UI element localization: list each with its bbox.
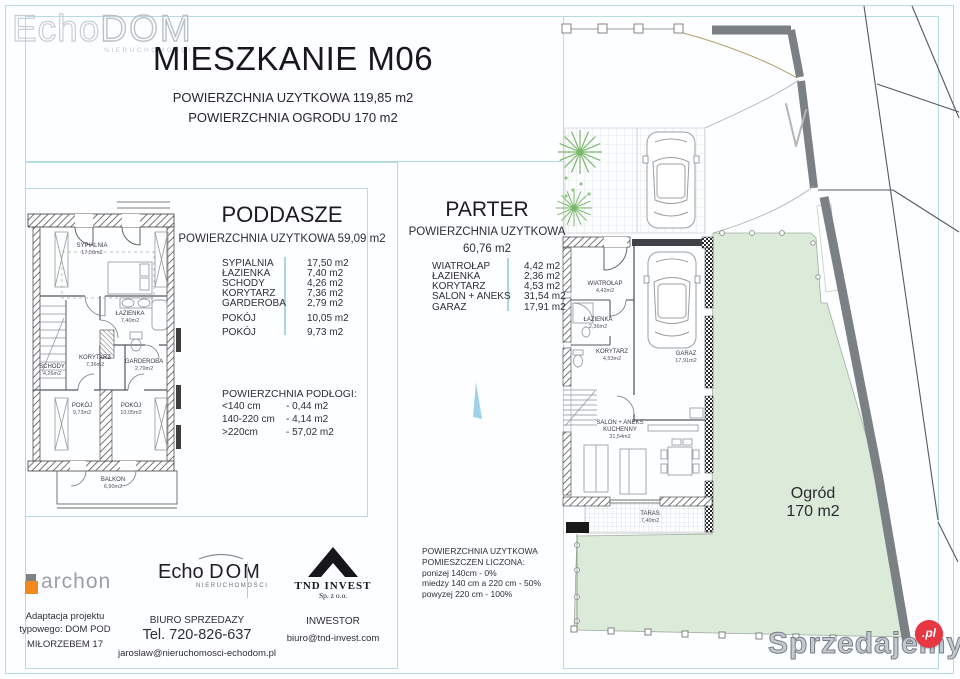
sales-email[interactable]: jaroslaw@nieruchomosci-echodom.pl bbox=[118, 648, 276, 659]
gate-marker bbox=[566, 522, 589, 533]
poddasze-title: PODDASZE bbox=[221, 202, 342, 228]
room-label-garaz: GARAZ17,91m2 bbox=[675, 351, 696, 365]
car-icon bbox=[643, 132, 699, 228]
archon-mark-gray bbox=[26, 574, 36, 581]
page-title: MIESZKANIE M06 bbox=[153, 40, 433, 78]
archon-line2: typowego: DOM POD bbox=[19, 624, 110, 635]
car-icon bbox=[644, 252, 700, 348]
parter-subtitle: POWIERZCHNIA UZYTKOWA bbox=[409, 226, 566, 238]
archon-logo: archon bbox=[41, 570, 111, 594]
table-row: GARAZ17,91 m2 bbox=[432, 302, 566, 313]
floor-area-row: >220cm- 57,02 m2 bbox=[222, 427, 334, 438]
room-label-pokoj: POKÓJ10,05m2 bbox=[120, 403, 141, 417]
room-label-taras: TARAS7,40m2 bbox=[640, 511, 660, 525]
parter-title: PARTER bbox=[445, 198, 528, 222]
room-label-sypialnia: SYPIALNIA17,50m2 bbox=[76, 243, 107, 257]
floor-area-row: 140-220 cm- 4,14 m2 bbox=[222, 414, 328, 425]
subtitle-garden-area: POWIERZCHNIA OGRODU 170 m2 bbox=[188, 110, 397, 125]
investor-label: INWESTOR bbox=[306, 616, 360, 627]
tnd-roof-icon bbox=[308, 547, 358, 577]
room-label-schody: SCHODY4,26m2 bbox=[39, 364, 65, 378]
echodom-footer-sub: NIERUCHOMOŚCI bbox=[196, 583, 268, 589]
area-counting-note: POWIERZCHNIA UZYTKOWA POMIESZCZEN LICZON… bbox=[422, 546, 541, 600]
archon-mark-orange bbox=[25, 581, 38, 594]
tree-icon bbox=[556, 190, 592, 226]
parter-stairs bbox=[563, 390, 597, 426]
table-row: SALON + ANEKS31,54 m2 bbox=[432, 291, 566, 302]
table-row: GARDEROBA2,79 m2 bbox=[222, 298, 343, 309]
garden-label: Ogród bbox=[791, 485, 835, 503]
tnd-logo-sub: Sp. z o.o. bbox=[319, 591, 347, 600]
site-plan bbox=[556, 6, 959, 643]
poddasze-subtitle: POWIERZCHNIA UZYTKOWA 59,09 m2 bbox=[178, 233, 385, 245]
table-row: POKÓJ9,73 m2 bbox=[222, 327, 343, 338]
floor-area-title: POWIERZCHNIA PODŁOGI: bbox=[222, 388, 357, 400]
floorplan-sheet: EchoDOM NIERUCHOMOŚCI MIESZKANIE M06 POW… bbox=[0, 0, 960, 679]
subtitle-usable-area: POWIERZCHNIA UZYTKOWA 119,85 m2 bbox=[173, 90, 414, 105]
room-label-lazienka-parter: ŁAZIENKA2,36m2 bbox=[583, 317, 612, 331]
sales-phone[interactable]: Tel. 720-826-637 bbox=[143, 627, 252, 643]
north-sliver-icon bbox=[473, 382, 482, 419]
room-label-korytarz-parter: KORYTARZ4,53m2 bbox=[596, 349, 628, 363]
archon-line3: MIŁORZEBEM 17 bbox=[27, 639, 103, 650]
room-label-garderoba: GARDEROBA2,79m2 bbox=[125, 359, 163, 373]
pl-badge-icon: .pl bbox=[915, 620, 943, 648]
garden-area-label: 170 m2 bbox=[786, 503, 839, 521]
echodom-logo-rule bbox=[247, 562, 248, 598]
watermark-echo: Echo bbox=[12, 8, 100, 49]
room-label-balkon: BALKON6,90m2 bbox=[101, 477, 125, 491]
parter-area: 60,76 m2 bbox=[463, 243, 511, 255]
sales-office-label: BIURO SPRZEDAZY bbox=[150, 615, 244, 626]
tree-icon bbox=[558, 130, 602, 174]
echodom-roof-icon bbox=[199, 555, 243, 560]
room-label-korytarz: KORYTARZ7,36m2 bbox=[79, 355, 111, 369]
investor-email[interactable]: biuro@tnd-invest.com bbox=[287, 633, 380, 644]
floor-area-row: <140 cm- 0,44 m2 bbox=[222, 401, 328, 412]
archon-line1: Adaptacja projektu bbox=[26, 611, 105, 622]
room-label-pokoj: POKÓJ9,73m2 bbox=[72, 403, 92, 417]
room-label-lazienka: ŁAZIENKA7,40m2 bbox=[115, 311, 144, 325]
room-label-wiatrolap: WIATROŁAP4,42m2 bbox=[588, 281, 623, 295]
table-row: POKÓJ10,05 m2 bbox=[222, 313, 349, 324]
room-label-salon: SALON + ANEKSKUCHENNY31,54m2 bbox=[596, 420, 643, 441]
